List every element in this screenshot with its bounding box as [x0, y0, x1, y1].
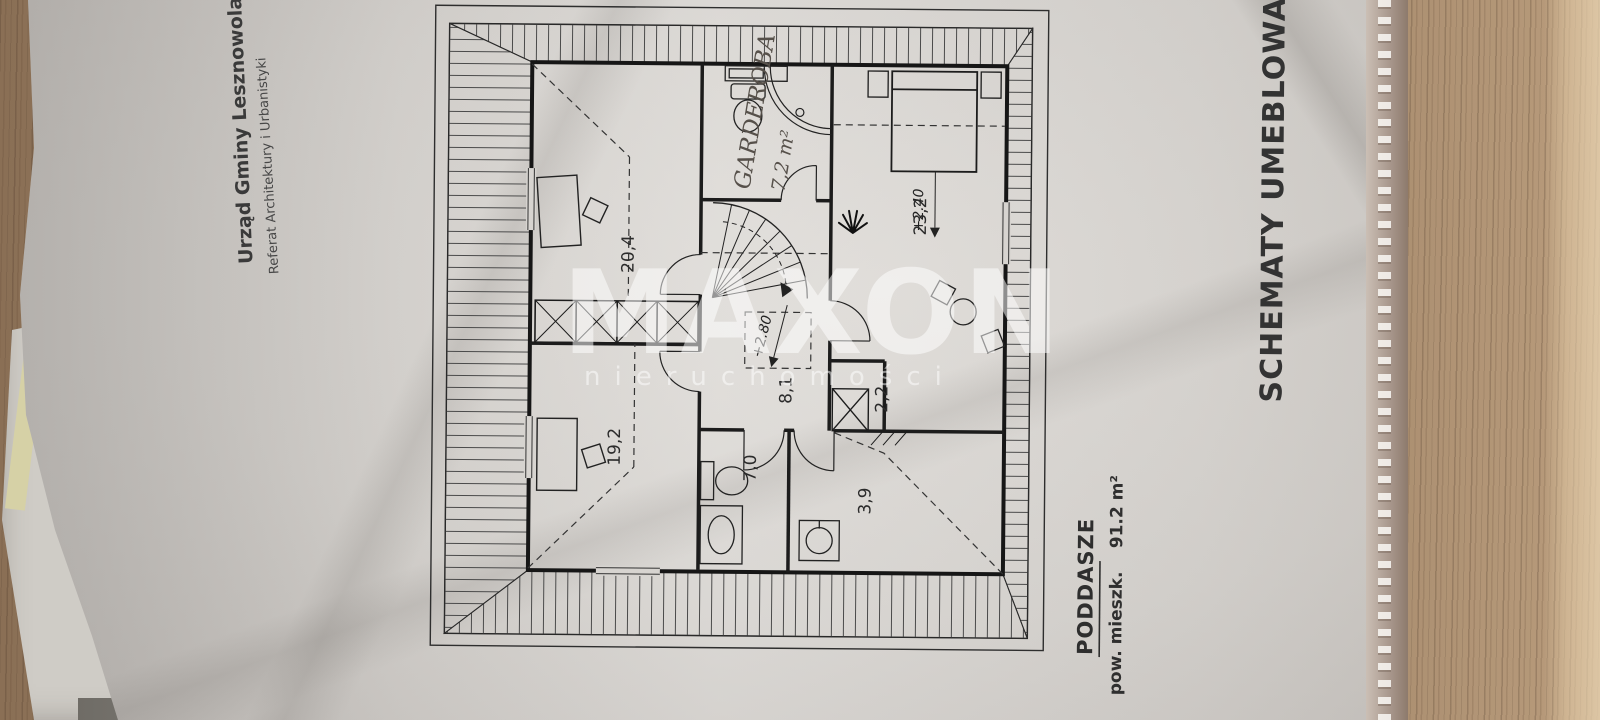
stairs-icon: [712, 203, 808, 299]
room-area-label-2-2: 2,2: [872, 386, 892, 413]
page-side-title: SCHEMATY UMEBLOWANIA W: [1254, 0, 1293, 403]
room-area-label-19-2: 19,2: [605, 428, 625, 466]
table-chairs-icon: [931, 280, 1006, 353]
handwritten-area: 7,2 m²: [767, 128, 799, 193]
floor-label: PODDASZE: [1073, 518, 1098, 655]
room-area-label-8-1: 8,1: [776, 377, 796, 404]
stamp-department: Referat Architektury i Urbanistyki: [254, 57, 282, 275]
plant-icon: [839, 211, 867, 233]
room-area-label-20-4: 20,4: [618, 235, 638, 273]
stamp-office-name: Urząd Gminy Lesznowola: [224, 0, 258, 264]
washbasin-icon: [799, 520, 839, 560]
room-area-label-7-0: 7,0: [741, 454, 761, 481]
chimney-shaft-icon: [832, 389, 907, 446]
room-area-label-23-2: 23,2: [911, 197, 931, 235]
desk-icon-2: [537, 418, 606, 491]
bed-icon: [867, 71, 1001, 172]
floor-plan-drawing: +2.40 +2.80 20,4 23,2 19,2 7,0 8,1 2,2 3…: [0, 0, 1600, 720]
area-caption: pow. mieszk.: [1106, 571, 1127, 695]
area-value: 91.2 m²: [1107, 475, 1128, 548]
wardrobe-icon: [535, 300, 698, 343]
level-value-upper: +2.80: [749, 314, 775, 360]
room-area-label-3-9: 3,9: [855, 487, 875, 514]
level-mark-upper: +2.80: [748, 299, 792, 368]
floor-label-underline: [1099, 561, 1100, 657]
desk-icon: [536, 175, 608, 248]
